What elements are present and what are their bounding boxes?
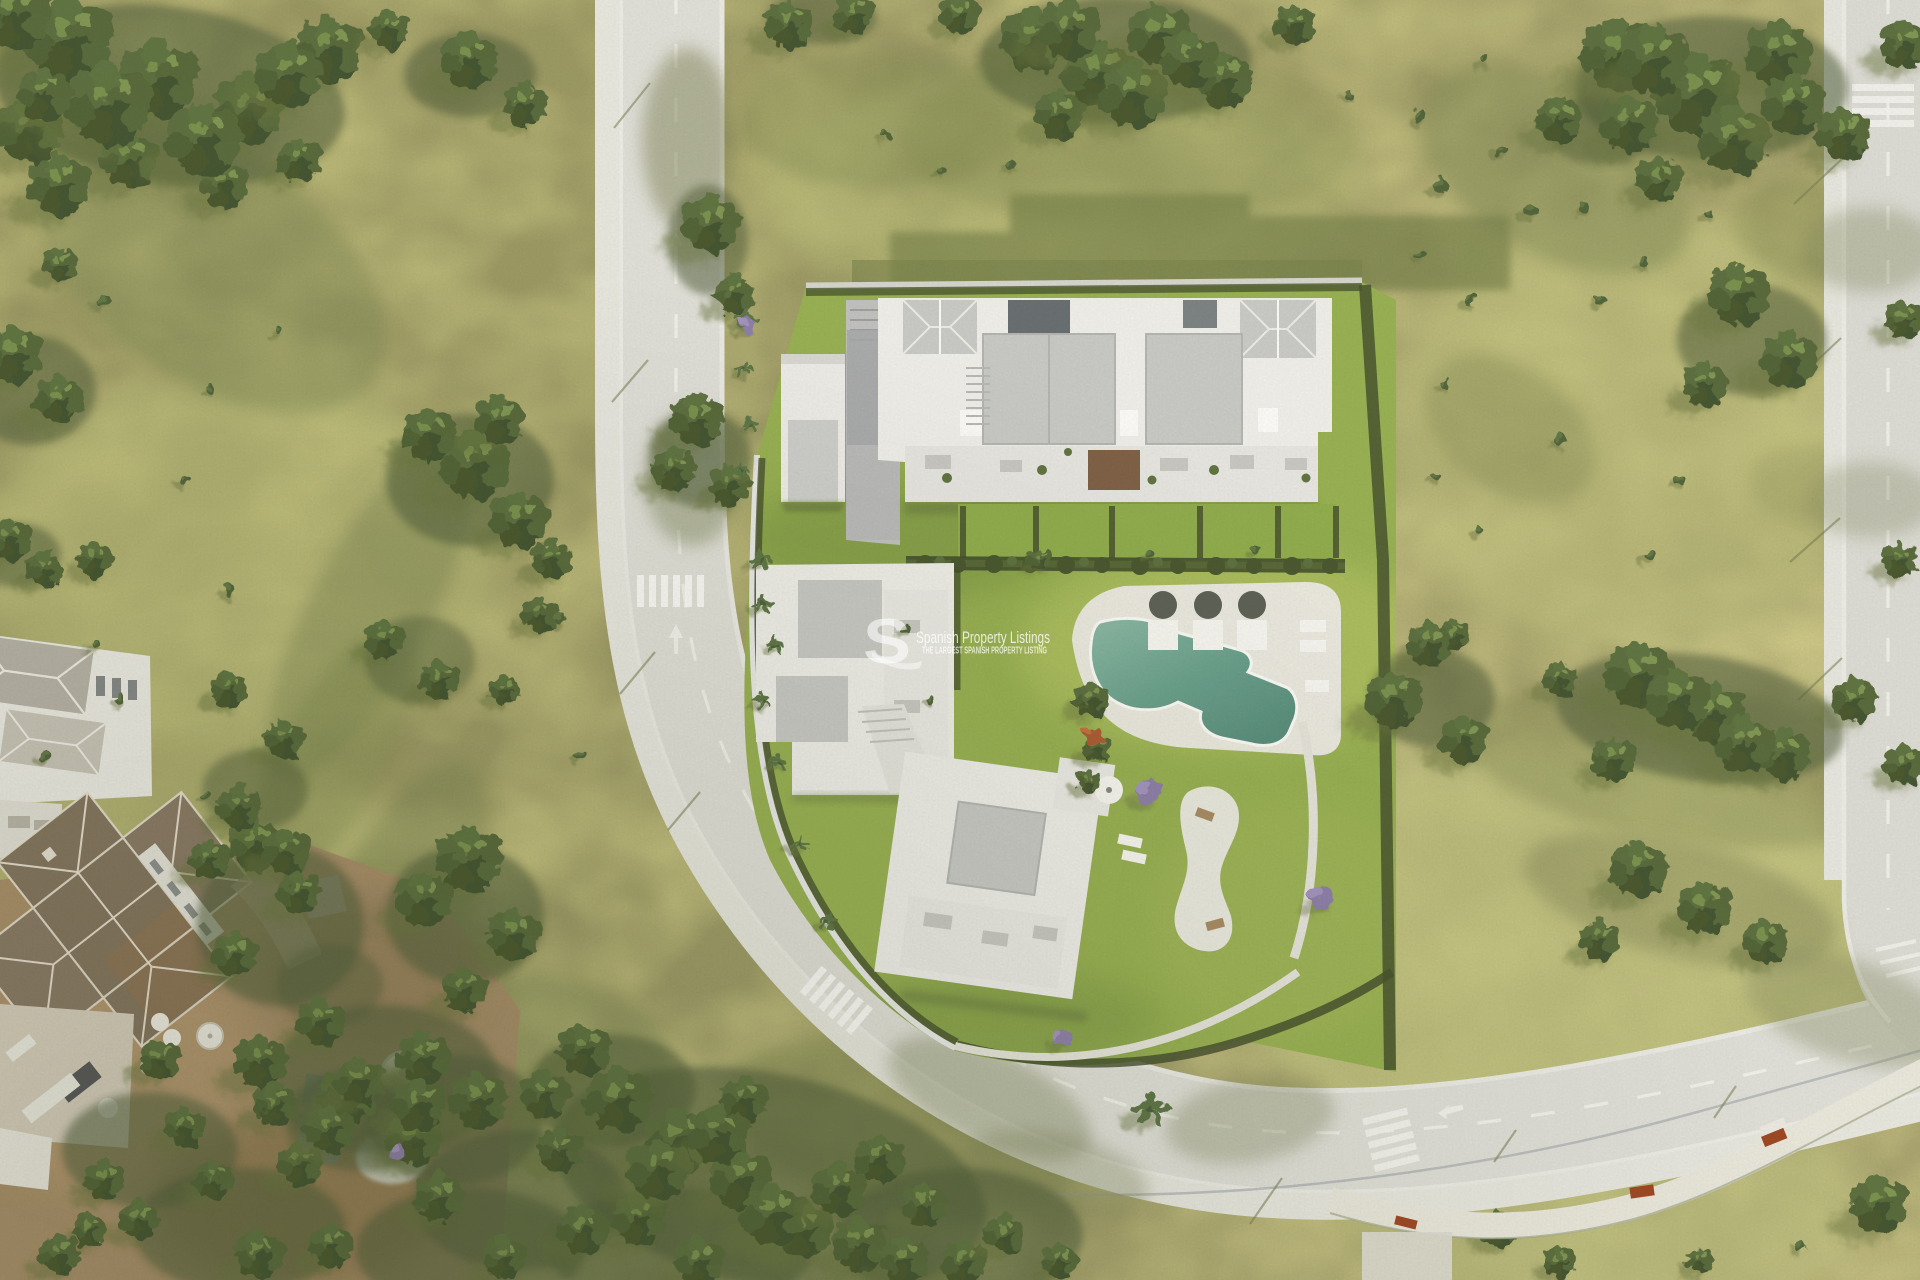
- svg-text:THE LARGEST SPANISH PROPERTY L: THE LARGEST SPANISH PROPERTY LISTING: [922, 645, 1047, 657]
